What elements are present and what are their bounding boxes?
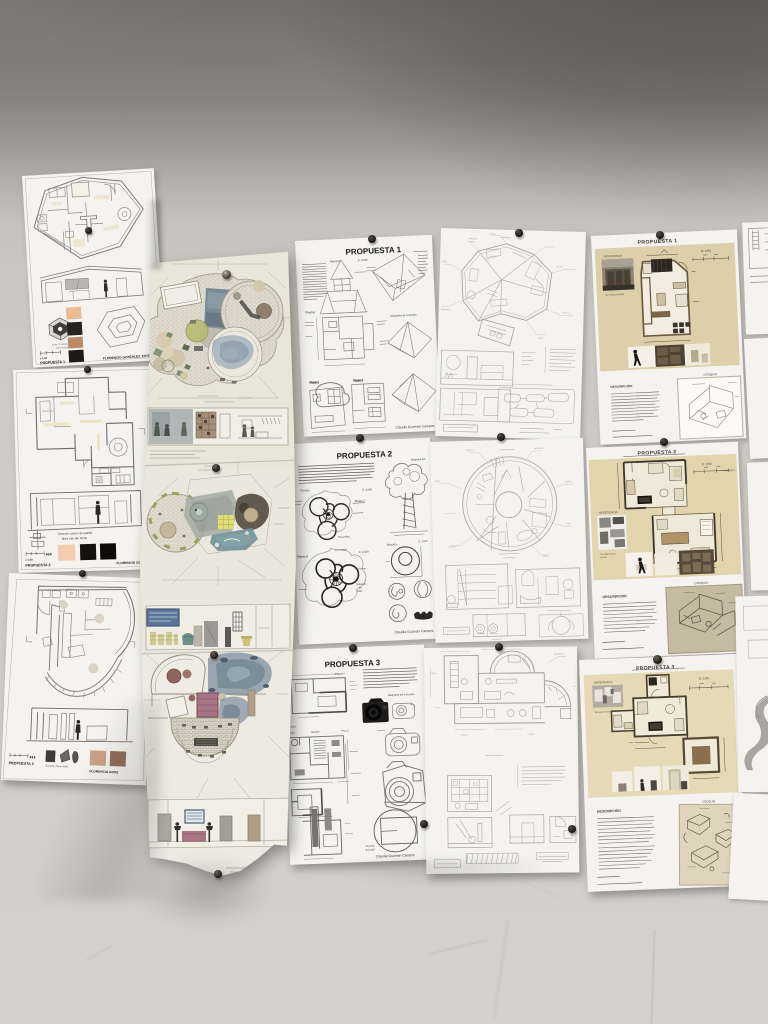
svg-text:Plantas: Plantas: [300, 488, 310, 492]
svg-text:PROPUESTA 1: PROPUESTA 1: [345, 245, 401, 257]
svg-text:salón: salón: [538, 338, 544, 340]
svg-text:salón: salón: [543, 556, 549, 558]
svg-text:DESCRIPCIÓN: DESCRIPCIÓN: [610, 383, 633, 389]
svg-text:Sección: Sección: [387, 542, 398, 546]
svg-text:acceso: acceso: [489, 233, 497, 235]
svg-text:Diagrama de concepto: Diagrama de concepto: [390, 313, 417, 318]
svg-text:baño: baño: [442, 260, 448, 263]
svg-text:PROPUESTA 1: PROPUESTA 1: [40, 360, 65, 365]
svg-text:Planta 2: Planta 2: [353, 378, 363, 382]
svg-text:Claudia Guzmán Campos: Claudia Guzmán Campos: [395, 424, 434, 430]
svg-text:e 1:50: e 1:50: [40, 356, 48, 360]
svg-text:CROQUIS: CROQUIS: [703, 372, 717, 377]
svg-text:Lacaton: Lacaton: [600, 556, 607, 559]
svg-text:E: 1/50: E: 1/50: [699, 676, 709, 680]
svg-text:terraza: terraza: [449, 545, 457, 548]
svg-text:Julia: Julia: [357, 589, 363, 593]
svg-text:acceso: acceso: [466, 450, 474, 452]
svg-text:terraza: terraza: [563, 311, 571, 314]
svg-text:Casa de campo de ladrillo: Casa de campo de ladrillo: [58, 531, 93, 536]
svg-text:Diagrama del: Diagrama del: [411, 458, 426, 462]
svg-text:0 1 2: 0 1 2: [30, 756, 36, 759]
svg-text:E: 1/100: E: 1/100: [418, 540, 428, 543]
svg-text:E 1/100: E 1/100: [366, 848, 376, 852]
svg-text:Mies Van der Rohe: Mies Van der Rohe: [62, 536, 88, 541]
svg-text:patio: patio: [435, 480, 441, 483]
svg-text:Plantas: Plantas: [305, 310, 316, 314]
svg-text:cocina: cocina: [556, 266, 563, 268]
svg-text:E: 1/50: E: 1/50: [702, 462, 712, 466]
svg-text:dormitorio: dormitorio: [534, 447, 545, 450]
svg-text:baño: baño: [529, 733, 535, 736]
svg-text:Piso 2: Piso 2: [341, 728, 349, 732]
svg-text:DESCRIPCIÓN: DESCRIPCIÓN: [602, 593, 627, 599]
svg-text:CROQUIS: CROQUIS: [702, 799, 715, 804]
svg-text:Hera Gestalt: Hera Gestalt: [56, 346, 69, 350]
svg-text:cocina: cocina: [565, 481, 572, 483]
svg-text:Claudia Guzmán Campos: Claudia Guzmán Campos: [395, 629, 434, 635]
svg-text:PROPUESTA 2: PROPUESTA 2: [336, 449, 392, 461]
svg-text:cocina: cocina: [430, 673, 437, 675]
svg-text:Sección: Sección: [366, 844, 376, 848]
svg-text:E: 1/100: E: 1/100: [358, 258, 368, 262]
svg-text:dormitorio: dormitorio: [441, 308, 452, 311]
svg-text:terraza: terraza: [461, 734, 469, 737]
svg-text:PROPUESTA 3: PROPUESTA 3: [9, 761, 34, 766]
svg-text:CROQUIS: CROQUIS: [694, 581, 708, 586]
svg-text:PROPUESTA 3: PROPUESTA 3: [636, 664, 675, 671]
svg-text:PROPUESTA 1: PROPUESTA 1: [637, 238, 677, 246]
svg-text:Escombra: Escombra: [338, 534, 350, 539]
svg-text:E: 1/100: E: 1/100: [359, 550, 369, 554]
svg-text:e 1:50: e 1:50: [25, 558, 33, 562]
svg-text:Planta 1: Planta 1: [355, 499, 366, 503]
svg-text:E: 1/100: E: 1/100: [362, 487, 372, 491]
svg-text:PROPUESTA 2: PROPUESTA 2: [25, 563, 50, 568]
svg-text:baño: baño: [566, 522, 572, 525]
svg-text:PROPUESTA 3: PROPUESTA 3: [324, 658, 380, 669]
svg-text:Planta 1: Planta 1: [309, 380, 319, 384]
svg-text:REFERENCIA: REFERENCIA: [594, 680, 613, 685]
svg-text:0 1 2: 0 1 2: [46, 553, 52, 556]
svg-text:Niveles: Niveles: [311, 730, 320, 734]
svg-text:Claudia Guzmán Campos: Claudia Guzmán Campos: [376, 853, 415, 858]
svg-text:dormitorio: dormitorio: [554, 653, 565, 656]
svg-text:REFERENCIA: REFERENCIA: [599, 510, 618, 515]
svg-text:Diagrama del concepto: Diagrama del concepto: [388, 692, 415, 697]
svg-text:E: 1/50: E: 1/50: [701, 249, 711, 253]
svg-text:DESCRIPCIÓN: DESCRIPCIÓN: [597, 808, 622, 814]
